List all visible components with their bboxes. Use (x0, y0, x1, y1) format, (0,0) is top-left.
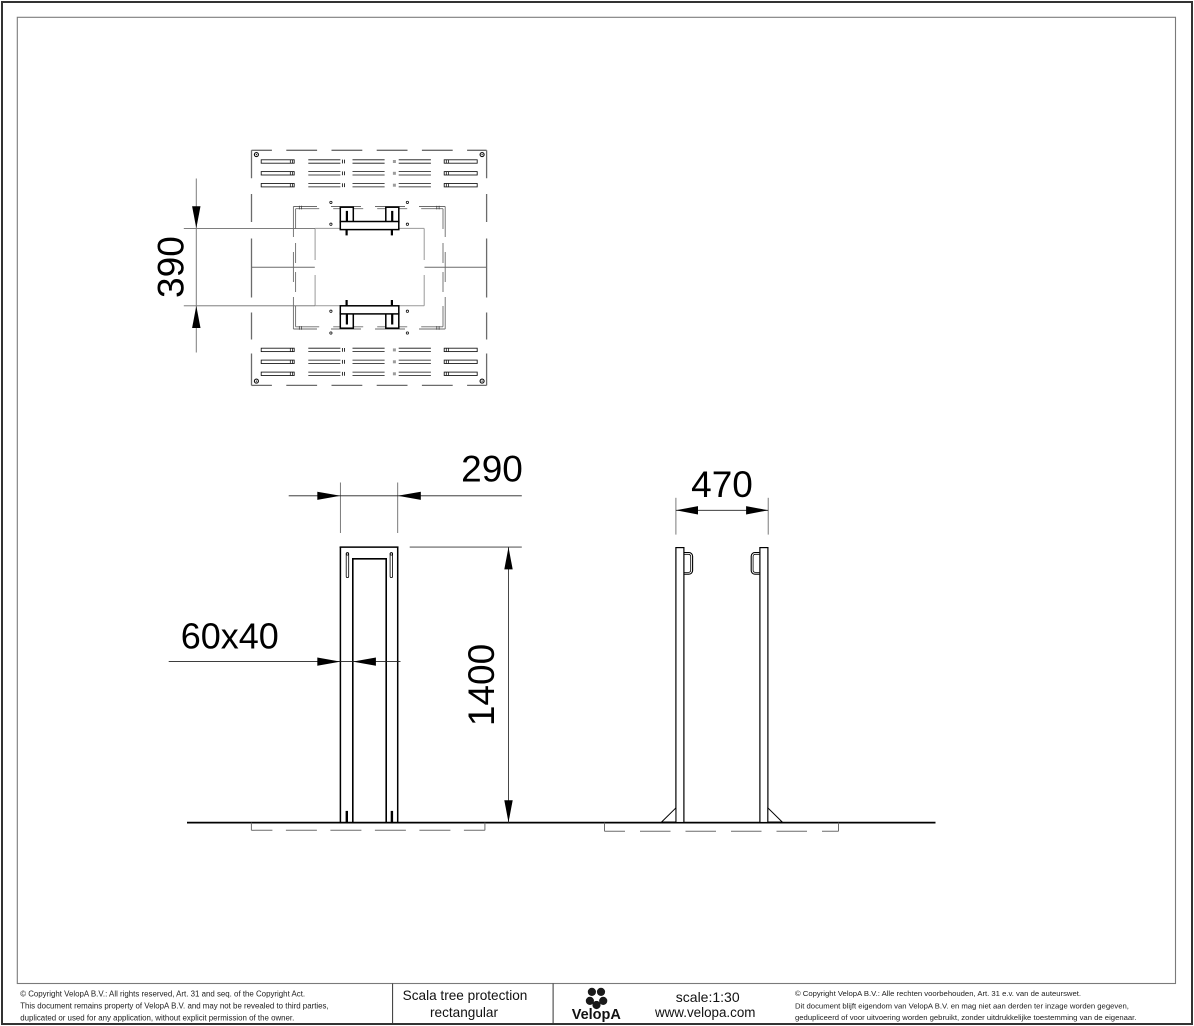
svg-text:This document remains property: This document remains property of VelopA… (20, 1001, 329, 1010)
svg-text:390: 390 (151, 236, 192, 298)
svg-text:gedupliceerd of voor uitvoerin: gedupliceerd of voor uitvoering worden g… (795, 1013, 1136, 1022)
svg-text:Scala tree protection: Scala tree protection (403, 988, 528, 1003)
svg-text:scale:1:30: scale:1:30 (676, 989, 740, 1005)
svg-text:1400: 1400 (461, 644, 502, 726)
svg-text:© Copyright VelopA B.V.: All r: © Copyright VelopA B.V.: All rights rese… (20, 989, 305, 998)
svg-text:© Copyright VelopA B.V.: Alle: © Copyright VelopA B.V.: Alle rechten vo… (795, 989, 1081, 998)
svg-text:60x40: 60x40 (181, 616, 279, 657)
svg-text:VelopA: VelopA (572, 1007, 622, 1023)
svg-text:Dit document blijft eigendom v: Dit document blijft eigendom van VelopA … (795, 1001, 1129, 1010)
svg-text:rectangular: rectangular (430, 1005, 498, 1020)
svg-text:290: 290 (461, 449, 523, 490)
svg-text:duplicated or used for any app: duplicated or used for any application, … (20, 1013, 294, 1022)
svg-text:www.velopa.com: www.velopa.com (654, 1005, 755, 1020)
svg-text:470: 470 (691, 464, 753, 505)
